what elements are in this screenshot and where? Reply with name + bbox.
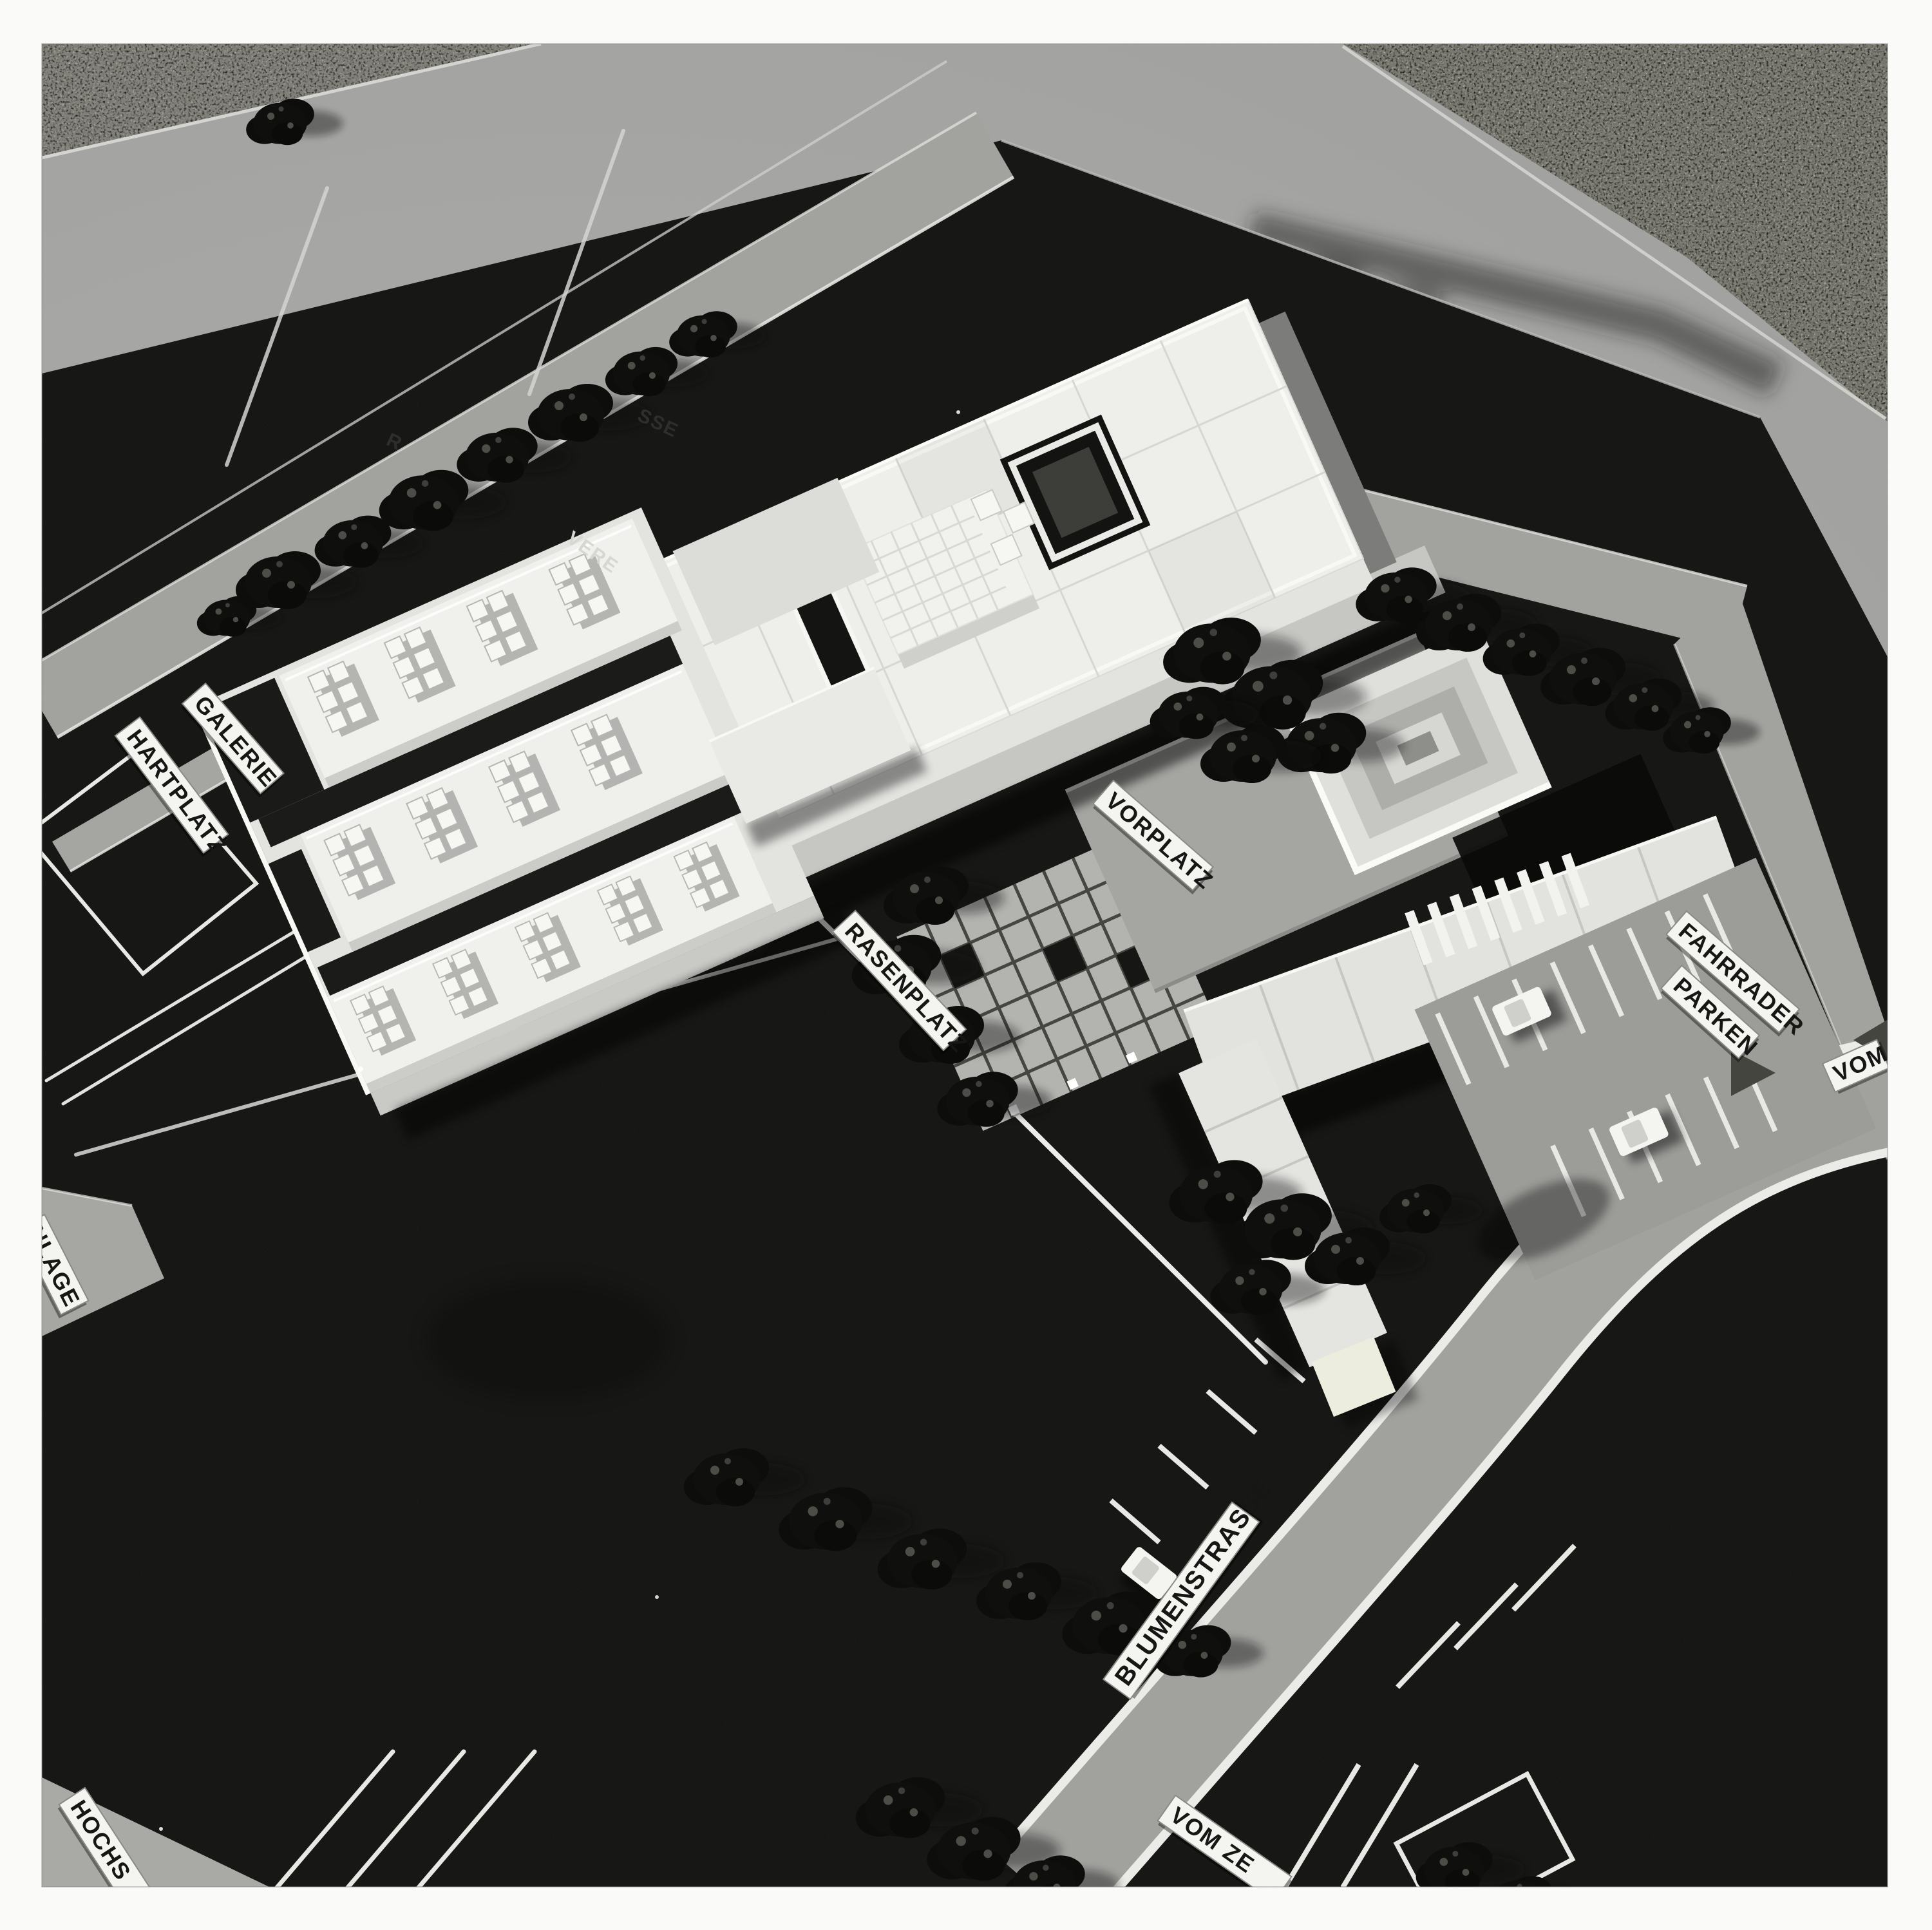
photo-canvas: R SSE VERE GALERIE HARTPLATZ RASENPLATZ …	[0, 0, 1932, 1930]
photo-content: R SSE VERE GALERIE HARTPLATZ RASENPLATZ …	[14, 44, 1897, 1929]
photograph-of-architecture-model: R SSE VERE GALERIE HARTPLATZ RASENPLATZ …	[0, 0, 1932, 1930]
film-grain	[42, 44, 1888, 1887]
